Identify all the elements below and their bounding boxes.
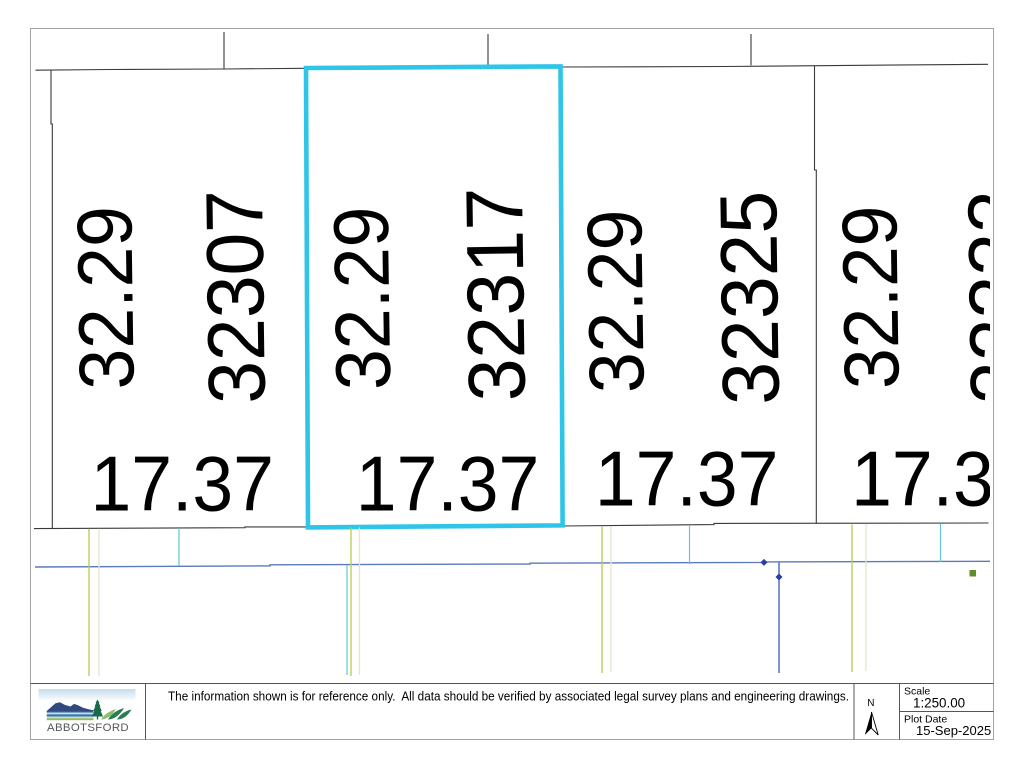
svg-text:32325: 32325: [702, 190, 796, 405]
svg-text:32317: 32317: [448, 187, 542, 402]
svg-text:The information shown is for r: The information shown is for reference o…: [168, 689, 849, 704]
svg-text:32.29: 32.29: [571, 209, 661, 394]
svg-text:32.29: 32.29: [318, 206, 408, 391]
svg-text:32307: 32307: [188, 189, 282, 404]
svg-text:15-Sep-2025: 15-Sep-2025: [916, 723, 991, 738]
svg-text:17.37: 17.37: [356, 440, 539, 528]
svg-text:32.29: 32.29: [826, 205, 916, 390]
svg-text:32.29: 32.29: [61, 206, 151, 391]
svg-text:17.37: 17.37: [91, 440, 274, 528]
svg-text:17.37: 17.37: [851, 435, 1024, 523]
svg-text:N: N: [867, 698, 874, 709]
svg-text:1:250.00: 1:250.00: [913, 695, 965, 710]
svg-text:17.37: 17.37: [595, 435, 778, 523]
svg-text:ABBOTSFORD: ABBOTSFORD: [47, 722, 129, 734]
svg-text:32333: 32333: [950, 189, 1024, 404]
